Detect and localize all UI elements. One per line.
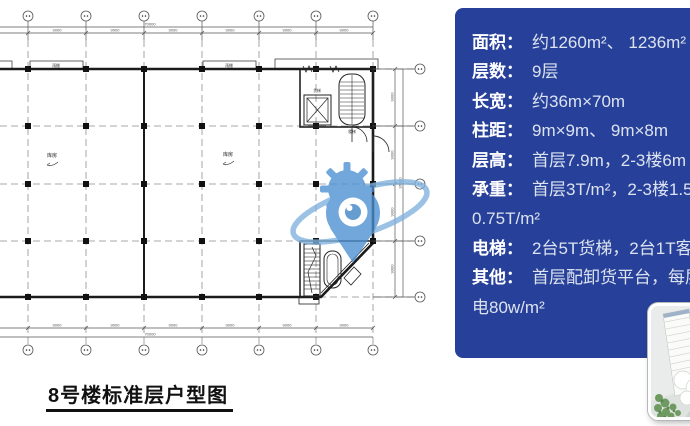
spec-value-continuation: 0.75T/m² [472,204,690,233]
spec-label: 电梯： [472,239,523,258]
svg-text:9000: 9000 [226,323,236,328]
elevator-label: 货梯 [313,88,321,93]
spec-value: 约36m×70m [532,92,625,111]
spec-value: 首层7.9m，2-3楼6m [532,151,686,170]
spec-value: 首层3T/m²，2-3楼1.5T/m²， [532,180,690,199]
watermark-logo [287,162,434,263]
spec-value: 约1260m²、 1236m² [532,33,686,52]
spec-row-area: 面积：约1260m²、 1236m² [472,28,690,57]
room-label-arrow [223,161,234,165]
svg-text:70000: 70000 [144,332,156,337]
svg-text:9000: 9000 [340,28,350,33]
core-top-right [300,66,373,142]
svg-text:70000: 70000 [144,22,156,27]
spec-row-floor-height: 层高：首层7.9m，2-3楼6m [472,146,690,175]
room-label: 库房 [223,151,233,158]
spec-value: 2台5T货梯，2台1T客梯 [532,239,690,258]
spec-row-other: 其他：首层配卸货平台，每层供 [472,263,690,292]
spec-label: 层数： [472,62,523,81]
svg-text:9000: 9000 [111,323,121,328]
canopy-label: 雨棚 [52,63,60,68]
spec-label: 长宽： [472,92,523,111]
svg-text:9000: 9000 [169,28,179,33]
spec-label: 层高： [472,151,523,170]
plan-caption: 8号楼标准层户型图 [46,379,233,412]
floor-plan-drawing: 雨棚 雨棚 [0,0,455,426]
entry-door [373,136,389,152]
spec-label: 承重： [472,180,523,199]
columns [25,66,376,300]
core-bottom-right [299,241,373,304]
svg-text:9000: 9000 [169,323,179,328]
svg-text:9000: 9000 [390,150,395,160]
svg-text:9000: 9000 [390,92,395,102]
building-render-image [651,306,690,420]
svg-text:9000: 9000 [53,323,63,328]
svg-text:9000: 9000 [283,28,293,33]
building-thumbnail [648,303,690,420]
spec-label: 其他： [472,268,523,287]
spec-row-load: 承重：首层3T/m²，2-3楼1.5T/m²， [472,175,690,204]
spec-label: 面积： [472,33,523,52]
svg-text:9000: 9000 [111,28,121,33]
spec-row-elevators: 电梯：2台5T货梯，2台1T客梯 [472,234,690,263]
spec-row-column-grid: 柱距：9m×9m、 9m×8m [472,116,690,145]
spec-label: 柱距： [472,121,523,140]
svg-text:9000: 9000 [226,28,236,33]
spec-value: 9层 [532,62,558,81]
svg-text:9000: 9000 [390,207,395,217]
page: 雨棚 雨棚 [0,0,690,426]
stair-label: 楼梯 [348,129,356,134]
spec-value: 首层配卸货平台，每层供 [532,268,690,287]
spec-row-floors: 层数：9层 [472,57,690,86]
svg-text:9000: 9000 [340,323,350,328]
svg-text:9000: 9000 [53,28,63,33]
svg-text:9000: 9000 [283,323,293,328]
room-label: 库房 [47,152,57,159]
room-label-arrow [47,162,58,166]
svg-text:9000: 9000 [390,264,395,274]
spec-value: 9m×9m、 9m×8m [532,121,668,140]
canopy-label: 雨棚 [225,63,233,68]
spec-row-dimensions: 长宽：约36m×70m [472,87,690,116]
